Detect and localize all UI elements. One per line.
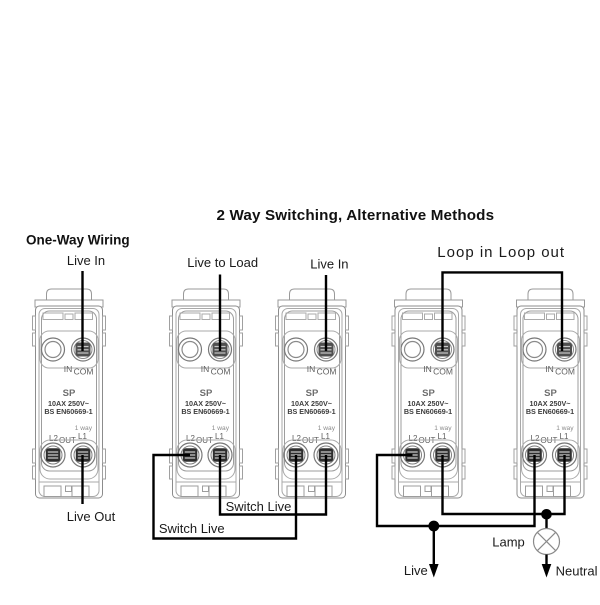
- svg-text:Live to Load: Live to Load: [187, 255, 258, 270]
- svg-text:Live: Live: [404, 563, 428, 578]
- svg-text:Loop in Loop out: Loop in Loop out: [437, 244, 565, 261]
- svg-text:Switch Live: Switch Live: [159, 521, 225, 536]
- svg-text:Live In: Live In: [67, 253, 105, 268]
- svg-text:Switch Live: Switch Live: [226, 499, 292, 514]
- svg-text:One-Way Wiring: One-Way Wiring: [26, 232, 130, 247]
- svg-text:Live Out: Live Out: [67, 509, 116, 524]
- svg-text:Lamp: Lamp: [492, 535, 525, 550]
- svg-text:Live In: Live In: [310, 257, 348, 272]
- svg-text:Neutral: Neutral: [556, 564, 598, 579]
- svg-text:2 Way Switching, Alternative M: 2 Way Switching, Alternative Methods: [217, 207, 495, 224]
